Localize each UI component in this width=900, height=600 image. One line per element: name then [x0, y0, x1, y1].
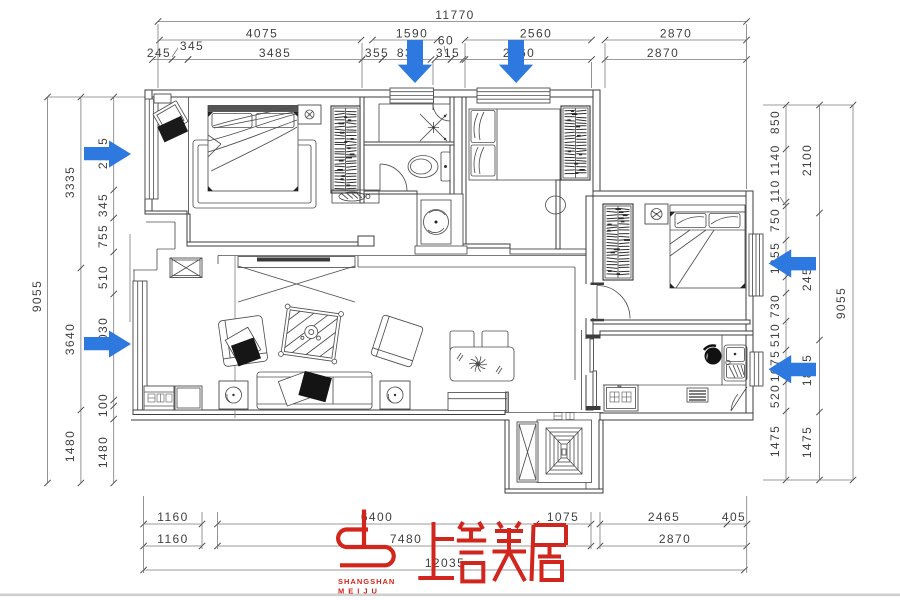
svg-text:2870: 2870: [660, 27, 692, 41]
svg-text:4075: 4075: [246, 27, 278, 41]
svg-text:1590: 1590: [396, 27, 428, 41]
svg-text:1160: 1160: [157, 510, 188, 524]
svg-text:1140: 1140: [768, 144, 782, 175]
svg-text:1475: 1475: [800, 426, 814, 458]
svg-text:755: 755: [96, 224, 110, 248]
svg-text:520: 520: [768, 384, 782, 408]
svg-text:2870: 2870: [659, 532, 691, 546]
svg-text:510: 510: [96, 265, 110, 289]
svg-text:850: 850: [768, 110, 782, 134]
svg-text:12035: 12035: [425, 556, 465, 570]
svg-text:1480: 1480: [96, 436, 110, 468]
svg-text:345: 345: [180, 39, 204, 53]
svg-text:3485: 3485: [259, 46, 291, 60]
svg-text:1075: 1075: [547, 510, 579, 524]
svg-text:355: 355: [365, 46, 389, 60]
svg-text:2560: 2560: [520, 27, 552, 41]
svg-text:730: 730: [768, 294, 782, 318]
svg-text:SHANGSHAN: SHANGSHAN: [338, 577, 395, 586]
svg-text:2870: 2870: [647, 46, 679, 60]
svg-text:3335: 3335: [63, 166, 77, 198]
svg-text:2465: 2465: [648, 510, 680, 524]
svg-text:2100: 2100: [800, 144, 814, 176]
svg-text:510: 510: [768, 323, 782, 347]
svg-text:11770: 11770: [435, 8, 474, 22]
svg-text:9055: 9055: [30, 280, 44, 312]
svg-text:245: 245: [147, 46, 171, 60]
svg-text:7480: 7480: [390, 532, 422, 546]
svg-text:110: 110: [768, 179, 782, 202]
svg-text:315: 315: [436, 46, 460, 60]
svg-text:1475: 1475: [768, 425, 782, 457]
svg-text:345: 345: [96, 193, 110, 217]
svg-text:1480: 1480: [63, 430, 77, 462]
svg-text:9055: 9055: [834, 287, 848, 319]
svg-text:1160: 1160: [157, 532, 188, 546]
svg-text:3640: 3640: [63, 323, 77, 355]
svg-text:750: 750: [768, 208, 782, 232]
svg-text:100: 100: [96, 393, 110, 417]
svg-text:405: 405: [722, 510, 746, 524]
